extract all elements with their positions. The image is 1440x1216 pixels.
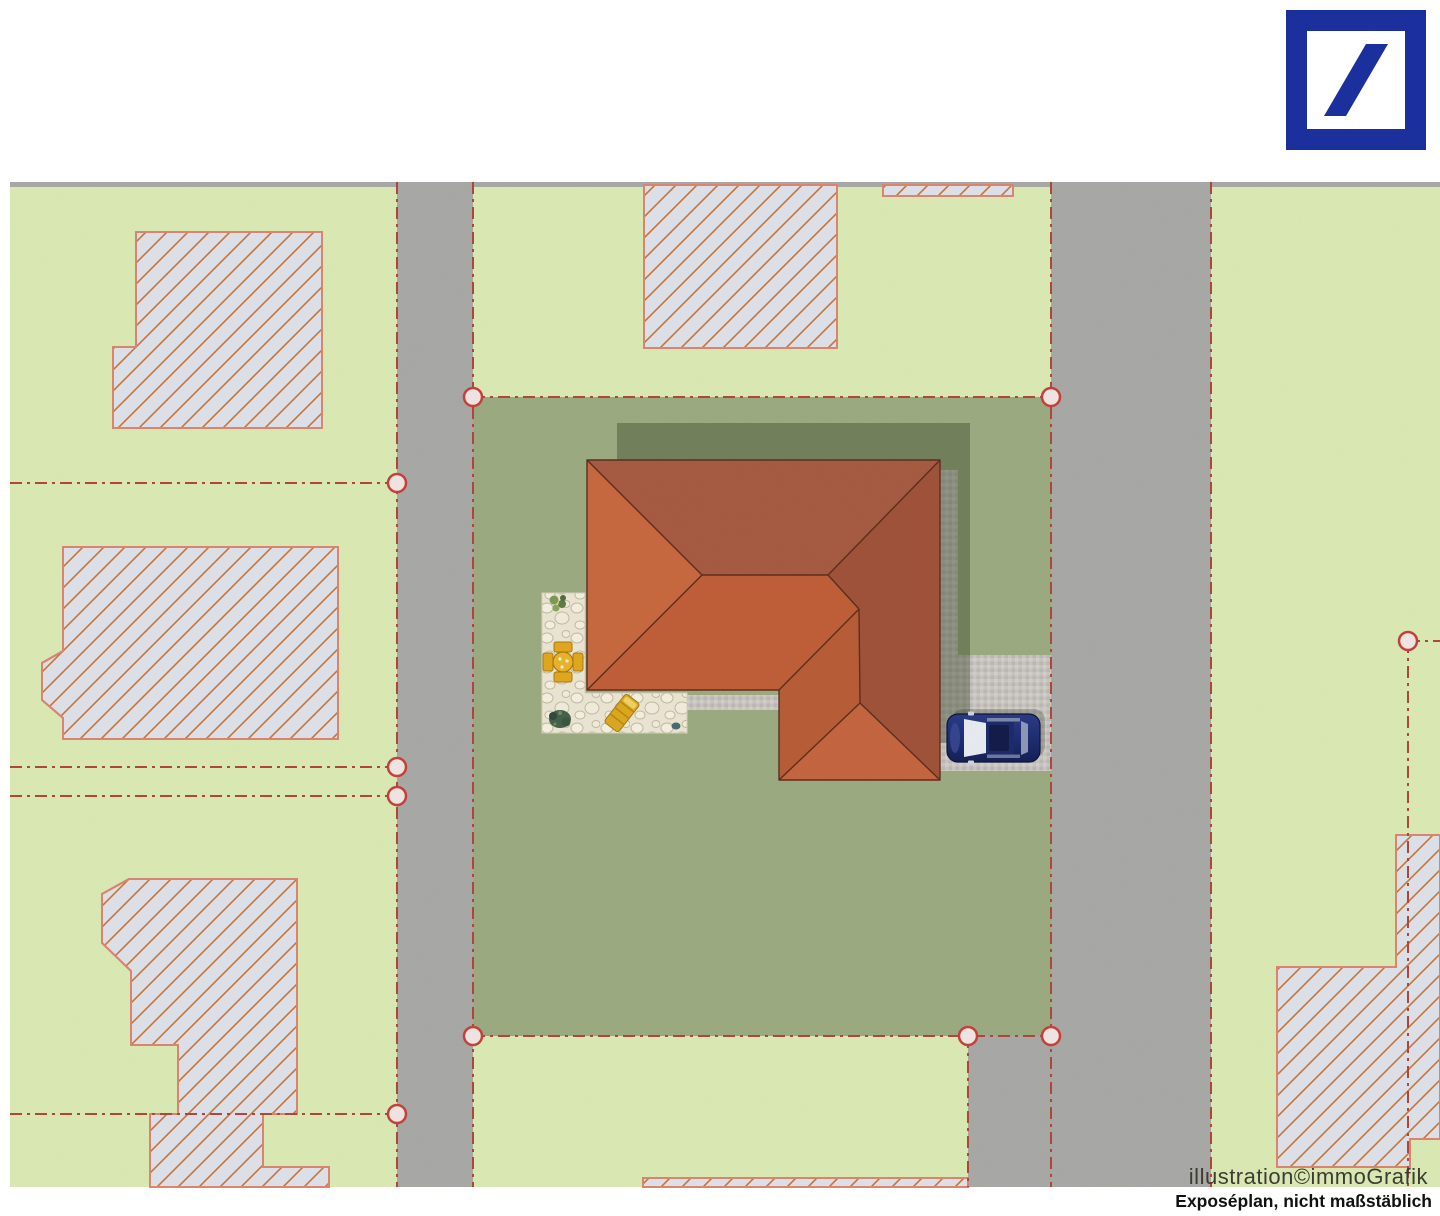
boundary-marker <box>464 1027 482 1045</box>
boundary-marker <box>388 787 406 805</box>
boundary-marker <box>959 1027 977 1045</box>
credit-text: illustration©immoGrafik <box>1189 1164 1428 1190</box>
boundary-marker <box>388 1105 406 1123</box>
site-plan-page: illustration©immoGrafik Exposéplan, nich… <box>0 0 1440 1216</box>
boundary-marker <box>1042 1027 1060 1045</box>
deutsche-bank-logo-icon <box>1286 10 1426 150</box>
disclaimer-text: Exposéplan, nicht maßstäblich <box>1175 1191 1432 1211</box>
boundary-marker <box>1399 632 1417 650</box>
boundary-marker <box>464 388 482 406</box>
site-plan-illustration <box>0 0 1440 1216</box>
boundary-marker <box>388 758 406 776</box>
boundary-marker <box>388 474 406 492</box>
boundary-marker <box>1042 388 1060 406</box>
